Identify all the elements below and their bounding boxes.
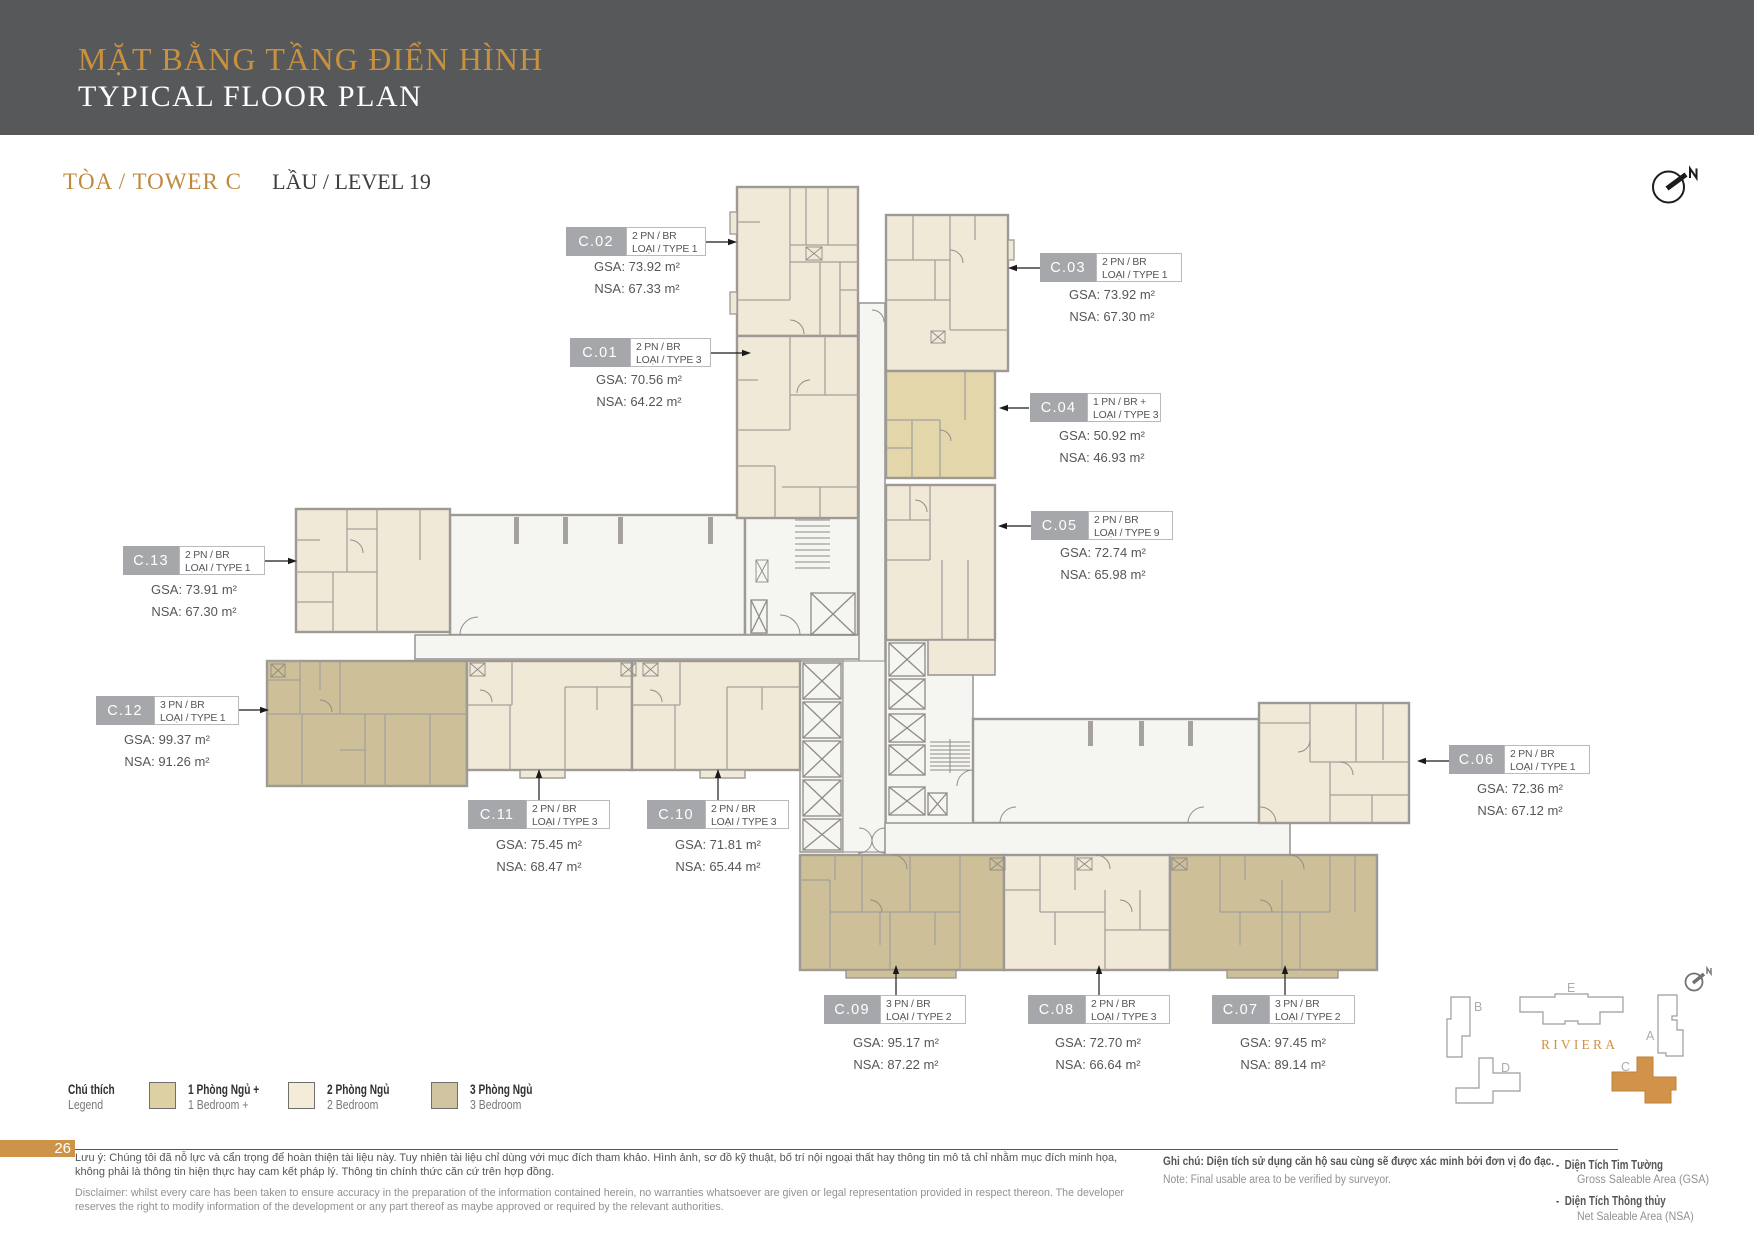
svg-text:E: E	[1567, 981, 1575, 995]
svg-text:B: B	[1474, 1000, 1482, 1014]
svg-text:C: C	[1621, 1060, 1630, 1074]
svg-text:RIVIERA: RIVIERA	[1541, 1037, 1618, 1052]
svg-text:D: D	[1501, 1061, 1510, 1075]
svg-text:A: A	[1646, 1029, 1655, 1043]
